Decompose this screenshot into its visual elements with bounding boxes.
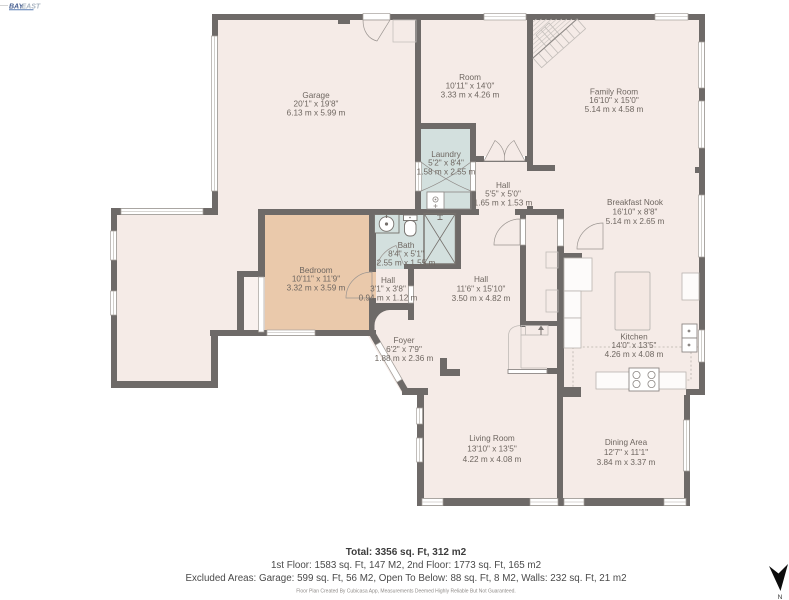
svg-text:16'10" x 8'8": 16'10" x 8'8" — [613, 208, 658, 217]
svg-text:4.22 m x 4.08 m: 4.22 m x 4.08 m — [463, 455, 522, 464]
svg-text:4.26 m x 4.08 m: 4.26 m x 4.08 m — [605, 350, 664, 359]
svg-text:Breakfast Nook: Breakfast Nook — [607, 198, 664, 207]
svg-text:3.84 m x 3.37 m: 3.84 m x 3.37 m — [597, 458, 656, 467]
svg-text:Room: Room — [459, 73, 481, 82]
svg-text:Hall: Hall — [496, 181, 510, 190]
svg-text:6'2" x 7'9": 6'2" x 7'9" — [386, 345, 422, 354]
svg-text:Kitchen: Kitchen — [620, 333, 648, 342]
svg-text:5.14 m x 4.58 m: 5.14 m x 4.58 m — [585, 105, 644, 114]
svg-text:Foyer: Foyer — [394, 336, 415, 345]
svg-text:13'10" x 13'5": 13'10" x 13'5" — [467, 445, 517, 454]
svg-text:Hall: Hall — [381, 276, 395, 285]
svg-text:12'7" x 11'1": 12'7" x 11'1" — [604, 448, 648, 457]
svg-text:1.88 m x 2.36 m: 1.88 m x 2.36 m — [375, 354, 434, 363]
svg-text:16'10" x 15'0": 16'10" x 15'0" — [589, 96, 639, 105]
svg-text:3'1" x 3'8": 3'1" x 3'8" — [370, 285, 406, 294]
svg-text:1st Floor: 1583 sq. Ft, 147 M2: 1st Floor: 1583 sq. Ft, 147 M2, 2nd Floo… — [271, 560, 541, 571]
svg-text:Floor Plan Created By Cubicasa: Floor Plan Created By Cubicasa App, Meas… — [296, 589, 516, 595]
svg-text:N: N — [778, 594, 783, 600]
svg-text:5'2" x 8'4": 5'2" x 8'4" — [428, 159, 464, 168]
svg-text:5'5" x 5'0": 5'5" x 5'0" — [485, 190, 521, 199]
svg-text:10'11" x 14'0": 10'11" x 14'0" — [446, 82, 495, 91]
svg-text:6.13 m x 5.99 m: 6.13 m x 5.99 m — [287, 108, 346, 117]
svg-text:1.58 m x 2.55 m: 1.58 m x 2.55 m — [417, 167, 476, 176]
svg-text:Laundry: Laundry — [431, 150, 461, 159]
svg-text:0.94 m x 1.12 m: 0.94 m x 1.12 m — [359, 293, 418, 302]
svg-text:EAST: EAST — [22, 3, 41, 10]
svg-text:Living Room: Living Room — [469, 434, 515, 443]
svg-text:Total: 3356 sq. Ft, 312 m2: Total: 3356 sq. Ft, 312 m2 — [346, 547, 467, 558]
svg-text:5.14 m x 2.65 m: 5.14 m x 2.65 m — [606, 217, 665, 226]
svg-text:Dining Area: Dining Area — [605, 438, 648, 447]
svg-text:Garage: Garage — [302, 91, 330, 100]
svg-text:Bedroom: Bedroom — [299, 266, 332, 275]
svg-text:Bath: Bath — [398, 241, 415, 250]
svg-text:11'6" x 15'10": 11'6" x 15'10" — [457, 285, 506, 294]
svg-text:Excluded Areas: Garage: 599 sq: Excluded Areas: Garage: 599 sq. Ft, 56 M… — [185, 573, 626, 584]
svg-text:8'4" x 5'1": 8'4" x 5'1" — [388, 250, 424, 259]
svg-text:3.50 m x 4.82 m: 3.50 m x 4.82 m — [452, 294, 511, 303]
svg-text:1.65 m x 1.53 m: 1.65 m x 1.53 m — [474, 198, 533, 207]
svg-text:Family Room: Family Room — [590, 88, 638, 97]
svg-text:3.32 m x 3.59 m: 3.32 m x 3.59 m — [287, 283, 346, 292]
svg-text:10'11" x 11'9": 10'11" x 11'9" — [292, 275, 340, 284]
svg-text:2.55 m x 1.55 m: 2.55 m x 1.55 m — [377, 258, 436, 267]
svg-text:20'1" x 19'8": 20'1" x 19'8" — [294, 100, 339, 109]
svg-text:14'0" x 13'5": 14'0" x 13'5" — [612, 341, 657, 350]
svg-text:3.33 m x 4.26 m: 3.33 m x 4.26 m — [441, 90, 500, 99]
svg-text:Hall: Hall — [474, 275, 488, 284]
